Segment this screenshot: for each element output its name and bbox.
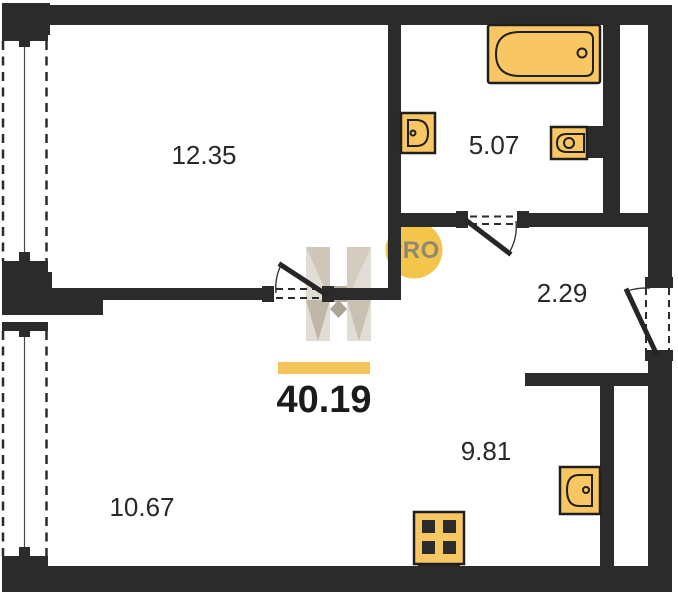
balcony-upper-window [2,32,48,272]
stove-burner [422,541,435,554]
interior-door-jamb-left [262,286,274,302]
bathtub-icon [488,25,600,83]
kitchen-sink-icon [560,467,600,514]
entrance-door-jamb-top [645,277,673,288]
area-label-kitchen: 9.81 [461,436,512,466]
wall-top [2,5,672,25]
accent-bar [278,362,370,374]
wall-divider-right [334,288,401,300]
stove-burner [443,541,456,554]
wall-right-lower [648,353,672,592]
bathroom-door-swing [467,217,516,254]
door-swing-arc [509,221,516,253]
door-leaf [627,291,656,353]
stove-burner [422,520,435,533]
area-label-room-top: 12.35 [171,140,236,170]
wall-bathroom-right [603,25,620,213]
toilet-tank [586,126,618,158]
wall-left-block-ext [50,298,103,315]
window-cap [2,261,48,272]
area-label-room-bottom: 10.67 [109,492,174,522]
toilet-icon [551,126,618,159]
wall-bathroom-left [388,25,401,300]
window-post [19,36,30,47]
area-label-bathroom: 5.07 [469,130,520,160]
stove-burner [443,520,456,533]
wall-bathroom-bottom-right [523,213,672,227]
wall-top-left-block [2,3,50,35]
balcony-lower-window [2,322,48,566]
entrance-door-swing [627,288,669,353]
wall-kitchen-right [600,373,614,567]
door-leaf [467,221,509,253]
wall-right-upper [648,5,672,277]
total-area-label: 40.19 [276,379,371,421]
window-post [19,326,30,337]
wall-left-block [2,272,52,315]
wall-bathroom-bottom-left [388,213,462,227]
floor-plan: PRO 40.19 [0,0,678,600]
floor-plan-drawing: PRO 40.19 [0,0,678,600]
wall-kitchen-top [525,373,655,386]
washbasin-icon [401,113,435,153]
window-cap [2,556,48,566]
area-label-hallway: 2.29 [537,278,588,308]
bathroom-door-jamb-right [517,211,529,228]
wall-bottom [2,566,672,592]
stove-icon [414,512,464,570]
